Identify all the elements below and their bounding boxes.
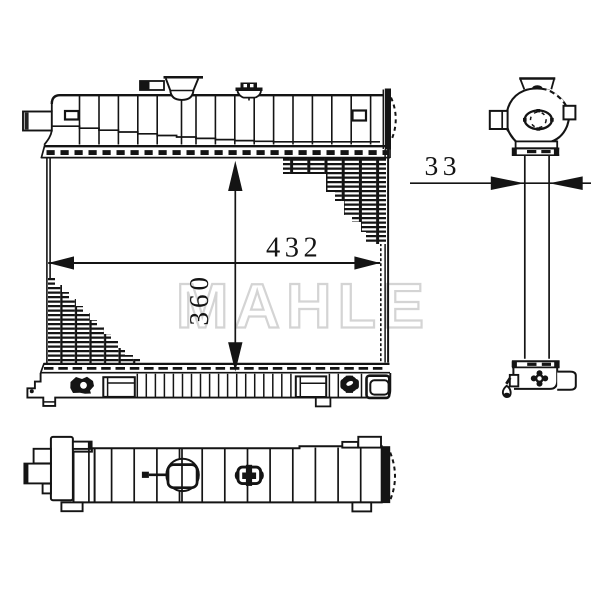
- svg-text:360: 360: [184, 273, 214, 326]
- svg-text:432: 432: [266, 233, 322, 264]
- svg-text:33: 33: [425, 150, 462, 181]
- svg-text:MAHLE: MAHLE: [176, 272, 430, 342]
